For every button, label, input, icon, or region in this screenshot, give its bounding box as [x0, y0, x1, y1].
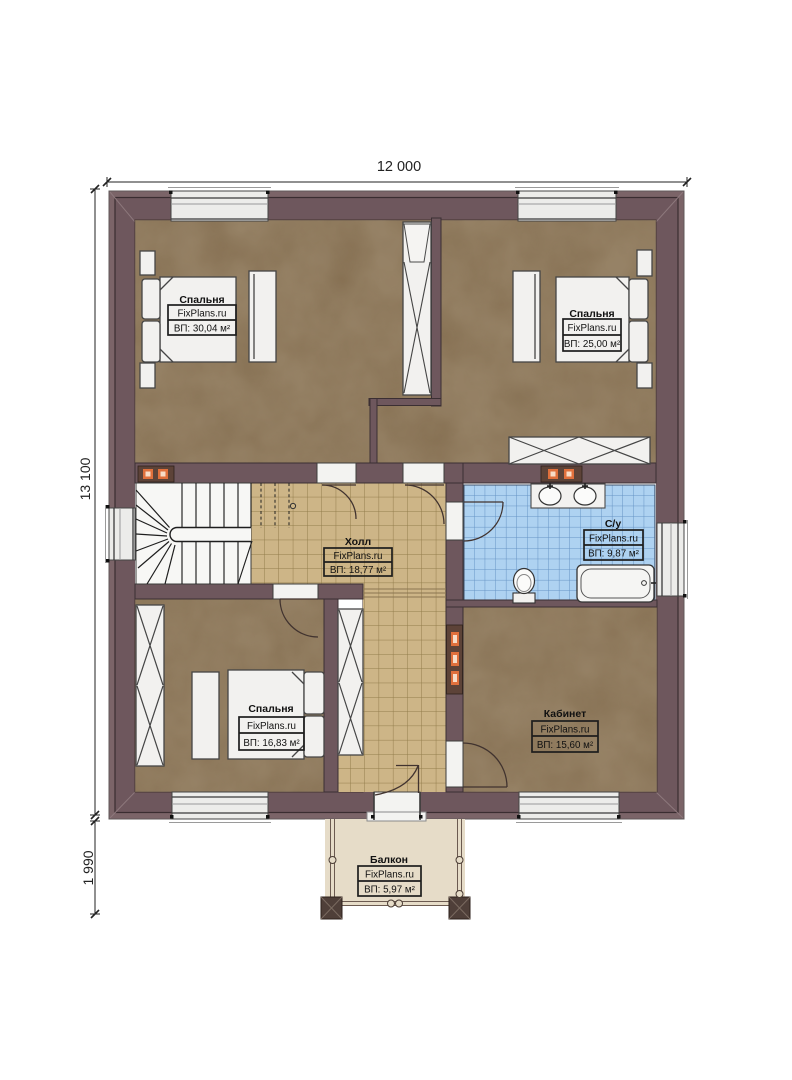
svg-text:ВП: 5,97 м²: ВП: 5,97 м² [364, 885, 416, 896]
svg-text:Кабинет: Кабинет [544, 708, 587, 720]
svg-text:ВП: 9,87 м²: ВП: 9,87 м² [588, 549, 640, 560]
svg-text:Балкон: Балкон [370, 854, 408, 866]
svg-text:ВП: 15,60 м²: ВП: 15,60 м² [537, 740, 594, 751]
svg-text:FixPlans.ru: FixPlans.ru [589, 534, 638, 545]
svg-text:FixPlans.ru: FixPlans.ru [247, 721, 296, 732]
svg-text:Спальня: Спальня [248, 703, 293, 715]
svg-text:ВП: 30,04 м²: ВП: 30,04 м² [174, 324, 231, 335]
svg-text:FixPlans.ru: FixPlans.ru [178, 309, 227, 320]
svg-text:FixPlans.ru: FixPlans.ru [541, 725, 590, 736]
svg-text:1 990: 1 990 [80, 850, 96, 885]
svg-text:FixPlans.ru: FixPlans.ru [568, 323, 617, 334]
svg-text:12 000: 12 000 [377, 159, 421, 175]
svg-text:FixPlans.ru: FixPlans.ru [365, 870, 414, 881]
svg-text:ВП: 18,77 м²: ВП: 18,77 м² [330, 565, 387, 576]
svg-text:Холл: Холл [345, 536, 371, 548]
svg-text:13 100: 13 100 [77, 457, 93, 500]
svg-text:ВП: 25,00 м²: ВП: 25,00 м² [564, 339, 621, 350]
svg-text:ВП: 16,83 м²: ВП: 16,83 м² [243, 738, 300, 749]
svg-text:FixPlans.ru: FixPlans.ru [334, 551, 383, 562]
svg-text:С/у: С/у [605, 518, 622, 530]
